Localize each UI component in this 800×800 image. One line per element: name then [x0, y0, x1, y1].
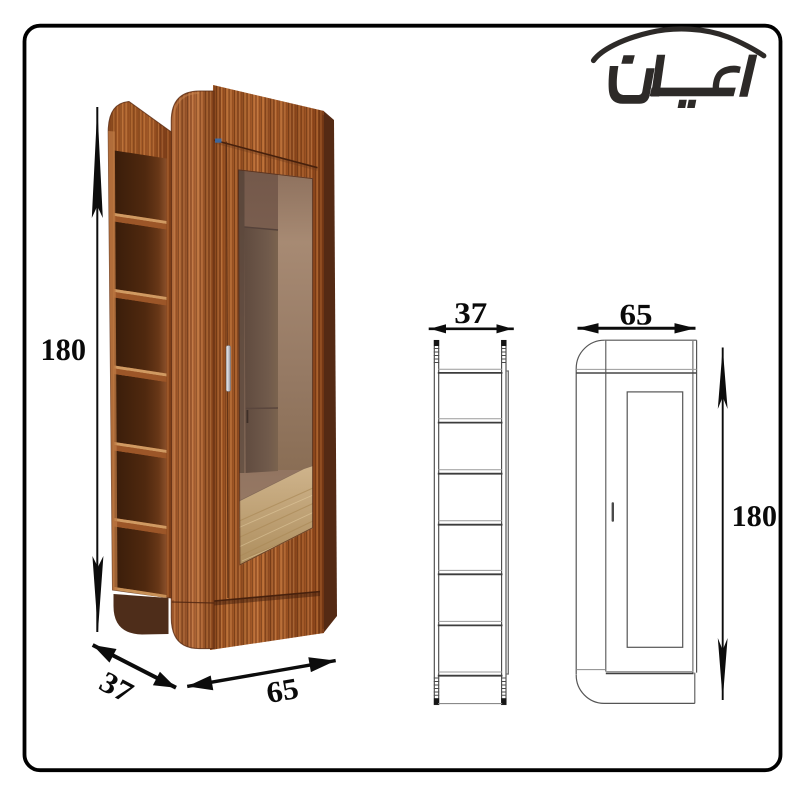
svg-text:37: 37 — [454, 297, 487, 330]
svg-text:180: 180 — [732, 500, 778, 533]
svg-text:180: 180 — [41, 332, 87, 367]
svg-text:65: 65 — [620, 299, 653, 332]
svg-text:65: 65 — [264, 672, 301, 710]
